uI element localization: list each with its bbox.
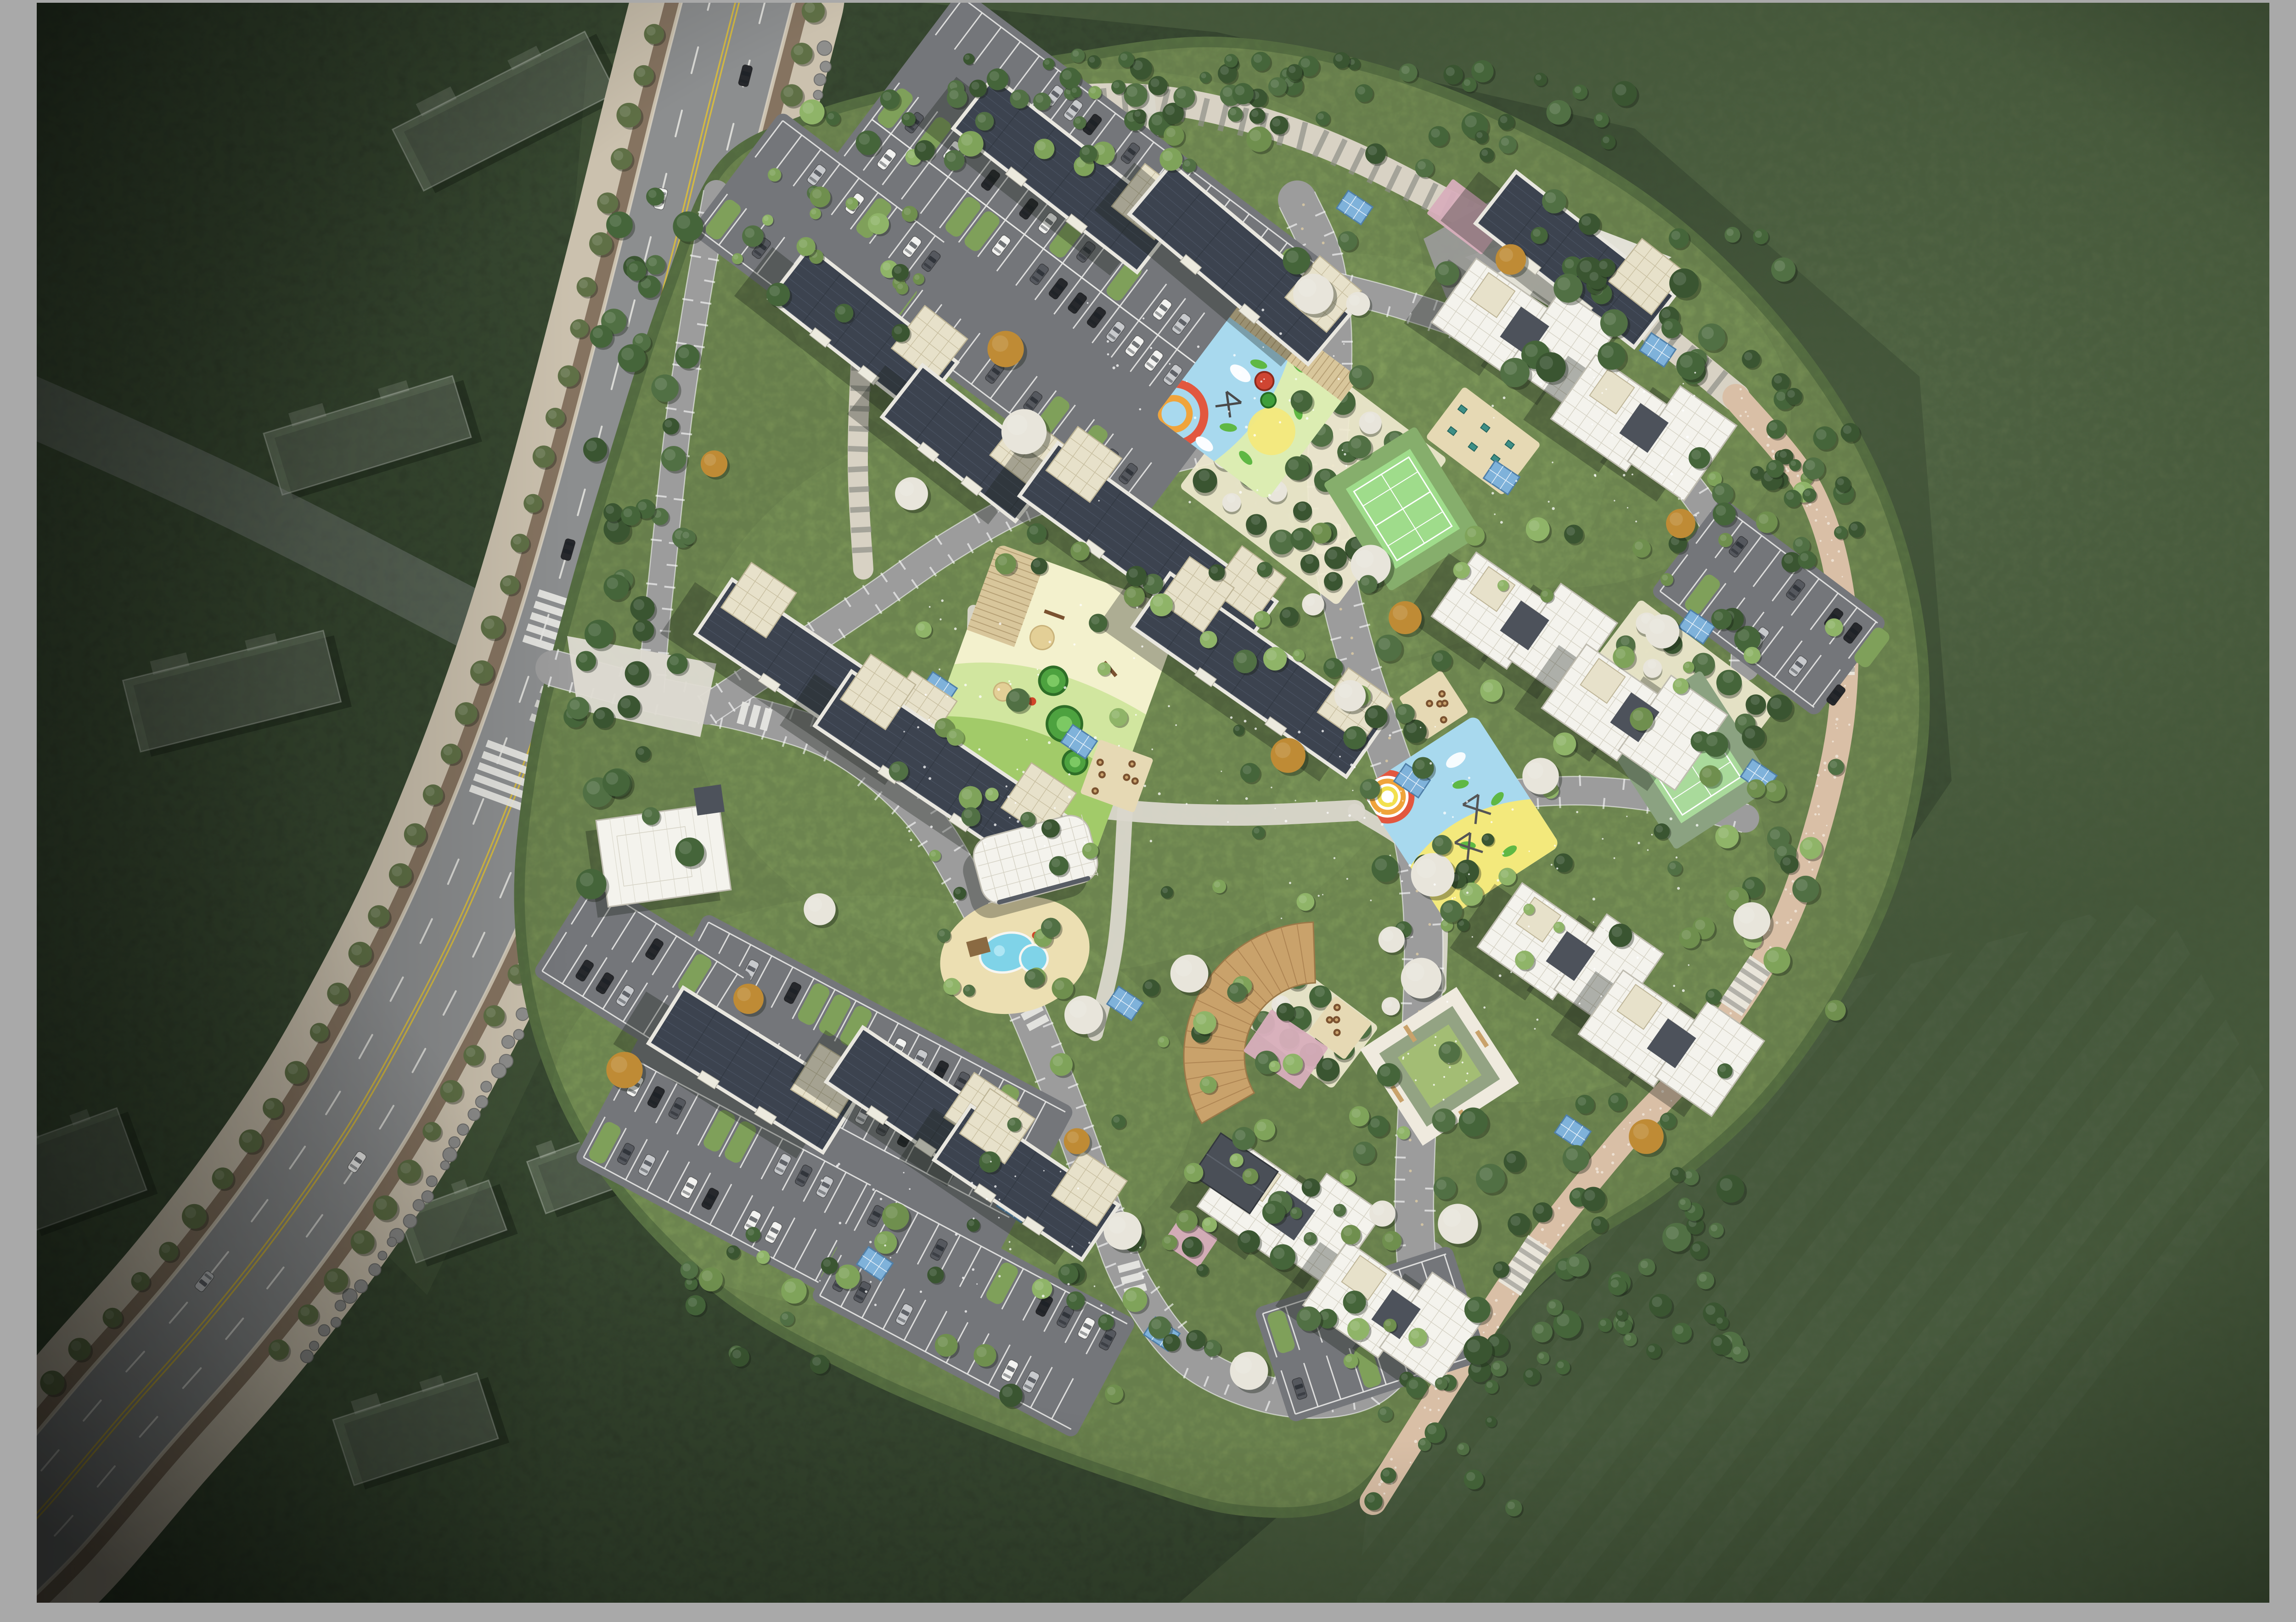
master-plan-canvas — [0, 0, 2296, 1622]
left-darkening — [0, 0, 574, 1622]
site-plan-rendering — [0, 0, 2296, 1622]
